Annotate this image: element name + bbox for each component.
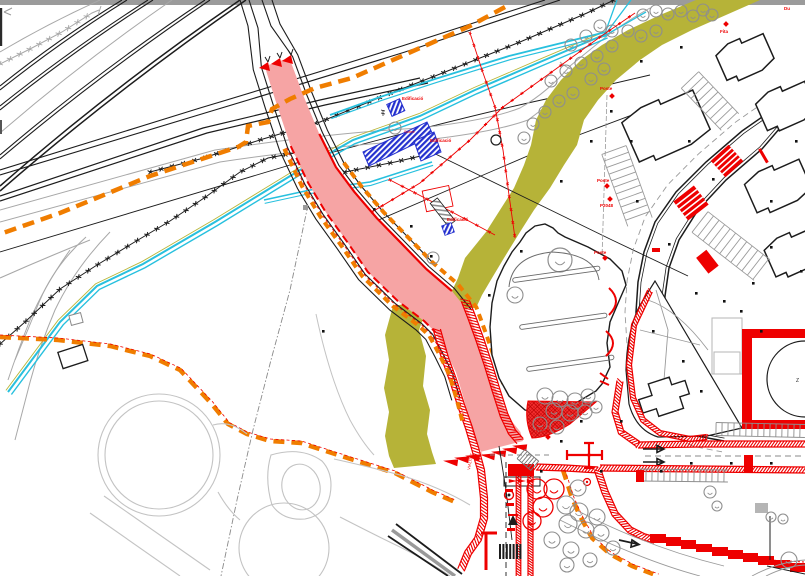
svg-text:Edificació: Edificació	[430, 138, 452, 143]
svg-text:Edificació: Edificació	[447, 217, 469, 222]
svg-text:Poste: Poste	[597, 178, 610, 183]
svg-text:Du: Du	[784, 6, 790, 11]
svg-text:Edificació: Edificació	[402, 96, 424, 101]
svg-text:Z: Z	[796, 378, 799, 384]
svg-text:Fita: Fita	[720, 29, 728, 34]
svg-text:Sobre: Sobre	[404, 129, 415, 134]
svg-text:Poste: Poste	[536, 428, 549, 433]
svg-text:Poste: Poste	[594, 250, 607, 255]
svg-text:P2048: P2048	[600, 203, 614, 208]
svg-text:Poste: Poste	[600, 86, 613, 91]
